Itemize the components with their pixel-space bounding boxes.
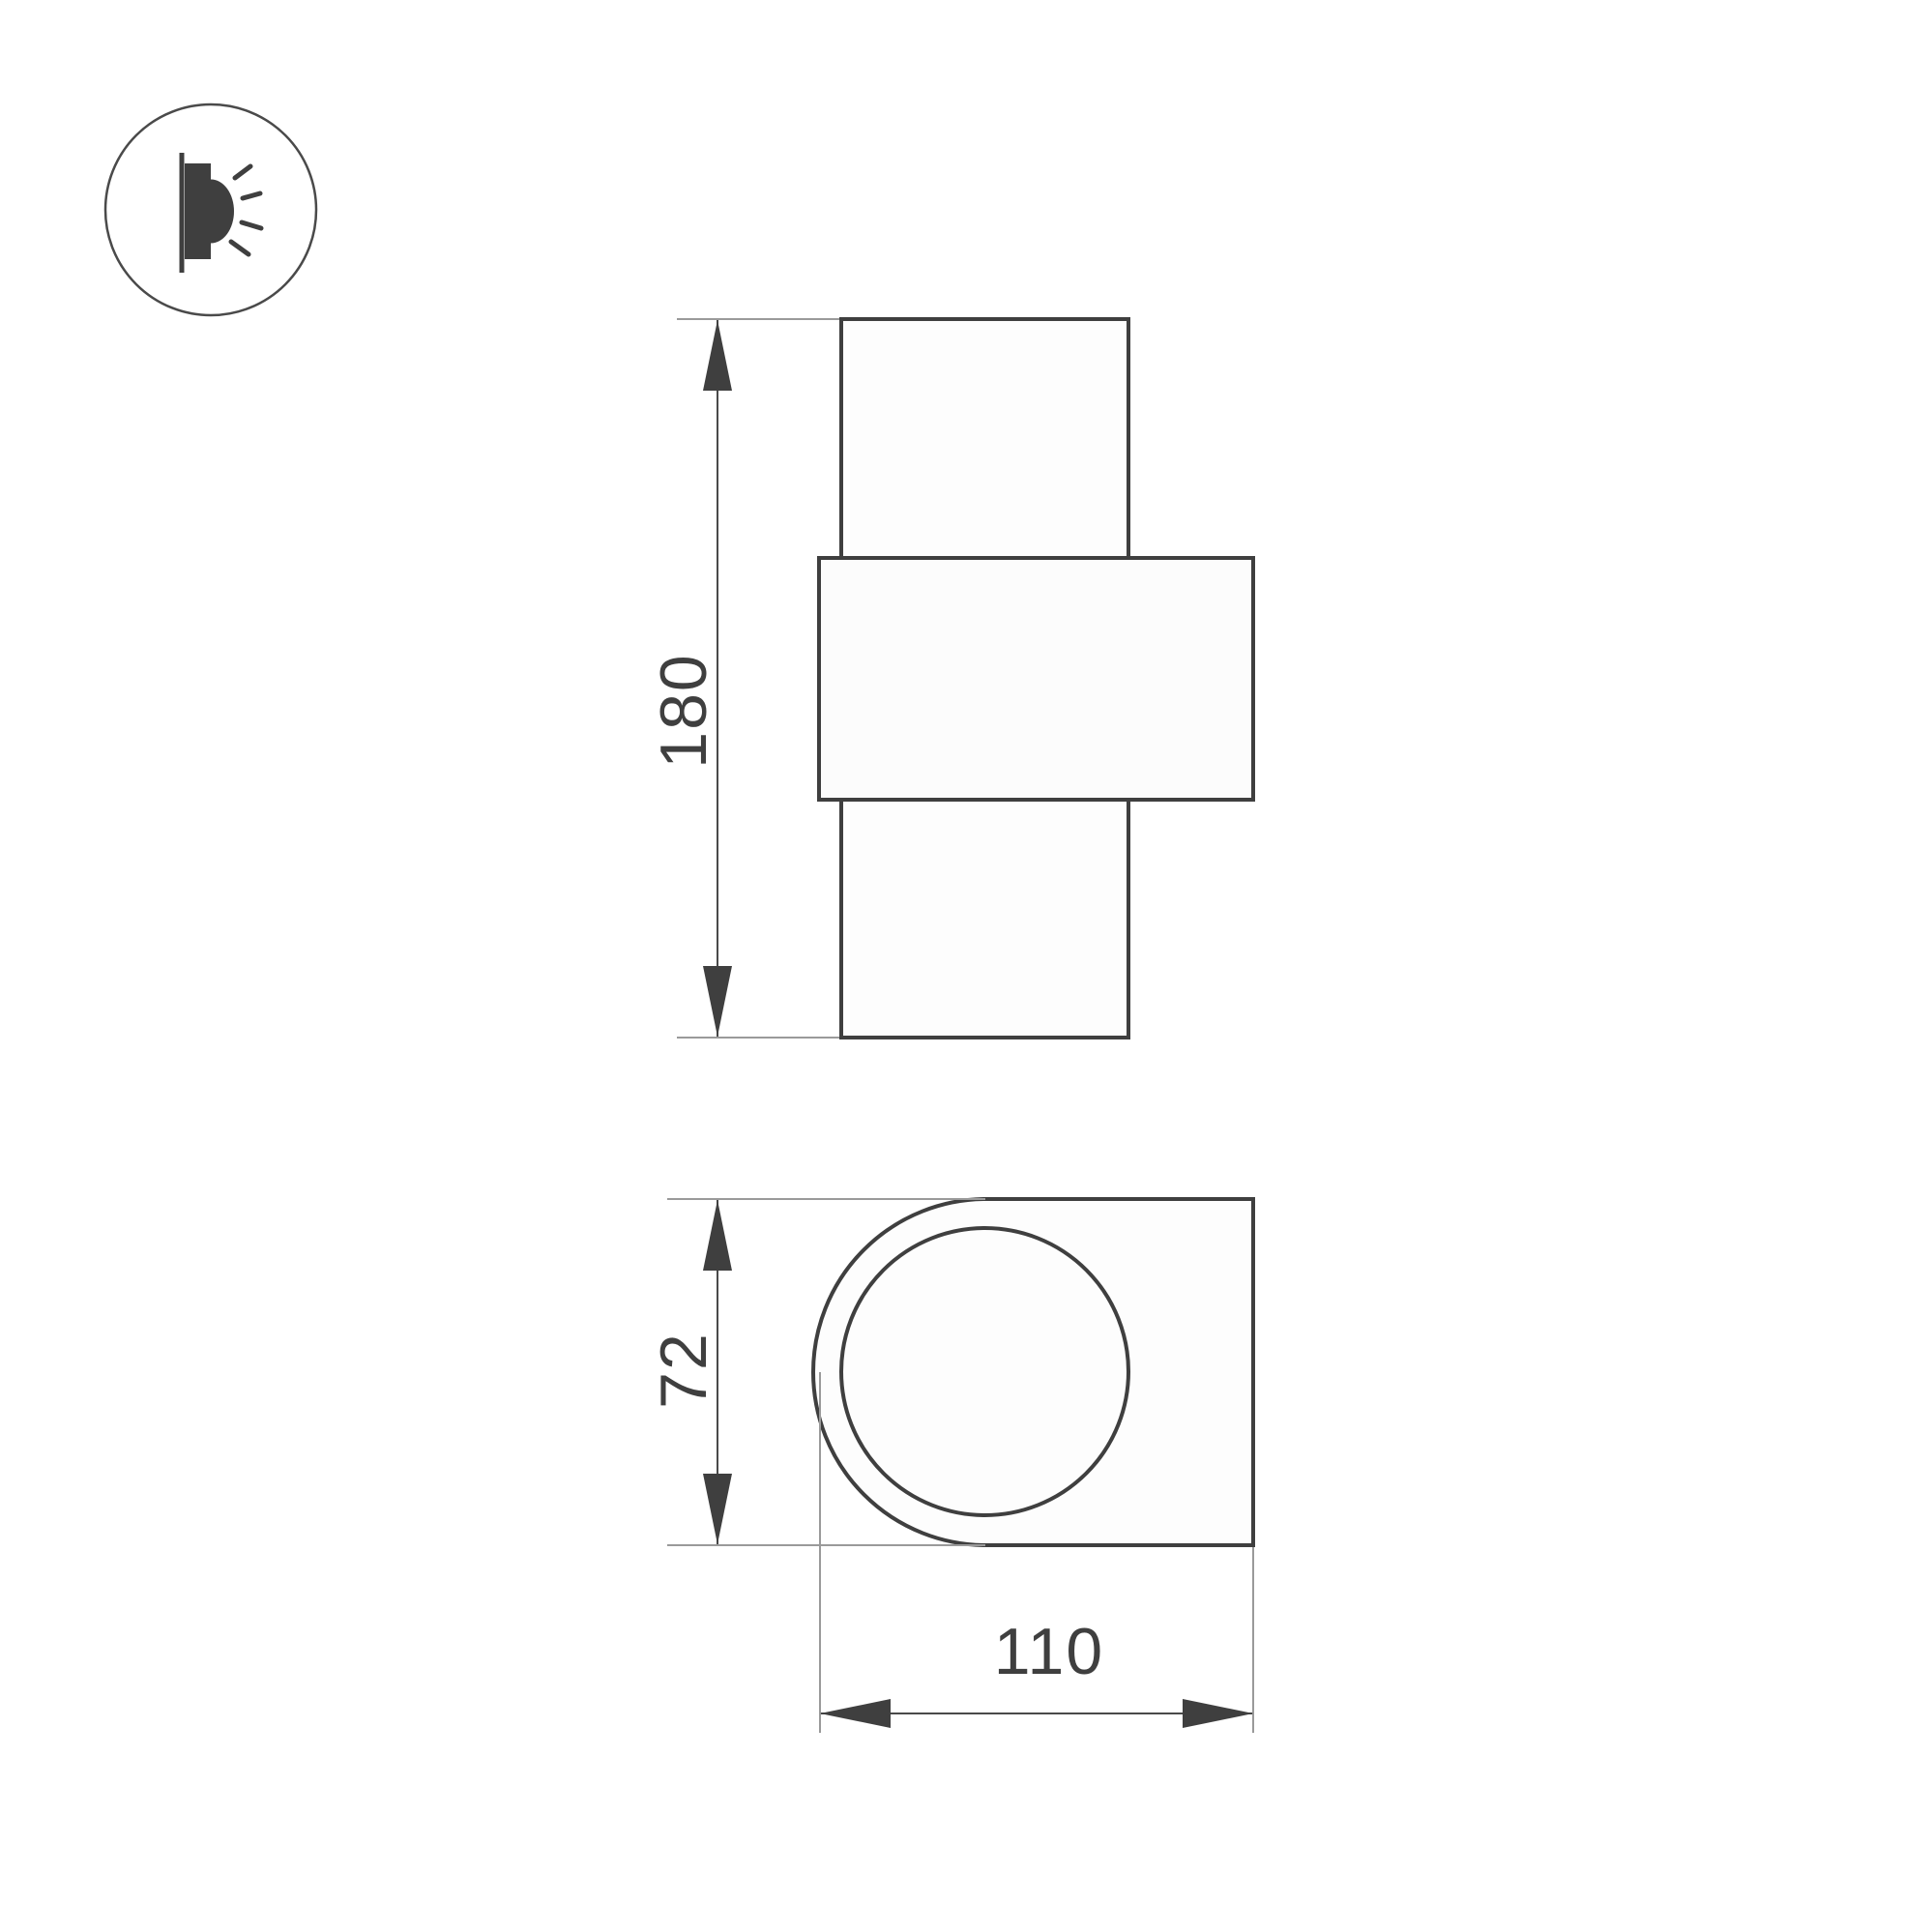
lamp-wall-bracket-outline [819, 558, 1253, 800]
bottom-view-lens-circle [841, 1228, 1128, 1515]
depth-dimension-label: 72 [647, 1332, 720, 1409]
icon-lamp-body [185, 163, 211, 259]
technical-drawing-canvas: 180 72 110 [0, 0, 1932, 1932]
height-dimension-label: 180 [647, 653, 720, 768]
bottom-view [813, 1199, 1253, 1545]
width-dimension-label: 110 [994, 1615, 1104, 1688]
